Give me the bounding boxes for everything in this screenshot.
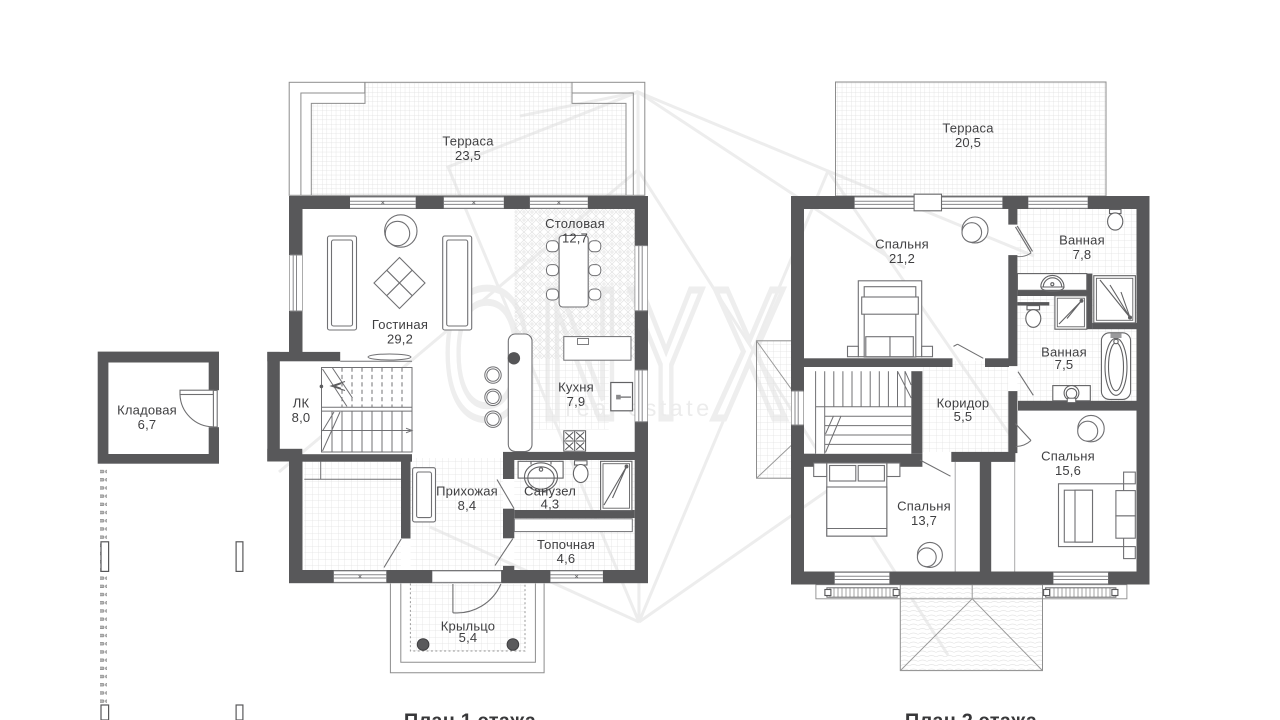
svg-text:Кладовая: Кладовая — [117, 403, 177, 418]
svg-text:4,6: 4,6 — [557, 551, 576, 566]
svg-text:7,5: 7,5 — [1055, 357, 1074, 372]
svg-text:5,5: 5,5 — [954, 409, 973, 424]
svg-text:12,7: 12,7 — [562, 231, 588, 246]
svg-text:ЛК: ЛК — [293, 396, 310, 411]
svg-text:15,6: 15,6 — [1055, 463, 1081, 478]
svg-text:23,5: 23,5 — [455, 148, 481, 163]
svg-text:13,7: 13,7 — [911, 513, 937, 528]
svg-text:Спальня: Спальня — [897, 499, 951, 514]
svg-text:20,5: 20,5 — [955, 135, 981, 150]
svg-text:5,4: 5,4 — [459, 630, 478, 645]
svg-text:План 1 этажа: План 1 этажа — [404, 711, 537, 720]
svg-text:29,2: 29,2 — [387, 332, 413, 347]
svg-text:Гостиная: Гостиная — [372, 317, 428, 332]
svg-text:Кухня: Кухня — [558, 380, 594, 395]
svg-text:Топочная: Топочная — [537, 537, 595, 552]
svg-text:7,8: 7,8 — [1073, 247, 1092, 262]
svg-text:8,4: 8,4 — [458, 498, 477, 513]
svg-text:Спальня: Спальня — [1041, 449, 1095, 464]
svg-text:Ванная: Ванная — [1059, 233, 1105, 248]
svg-text:Терраса: Терраса — [442, 134, 494, 149]
svg-text:Терраса: Терраса — [942, 121, 994, 136]
svg-text:Столовая: Столовая — [545, 216, 605, 231]
svg-text:8,0: 8,0 — [292, 410, 311, 425]
svg-text:6,7: 6,7 — [138, 417, 157, 432]
svg-text:Прихожая: Прихожая — [436, 484, 498, 499]
svg-text:4,3: 4,3 — [541, 497, 560, 512]
svg-text:21,2: 21,2 — [889, 251, 915, 266]
svg-text:7,9: 7,9 — [567, 394, 586, 409]
svg-text:План 2 этажа: План 2 этажа — [905, 711, 1038, 720]
svg-text:Спальня: Спальня — [875, 237, 929, 252]
